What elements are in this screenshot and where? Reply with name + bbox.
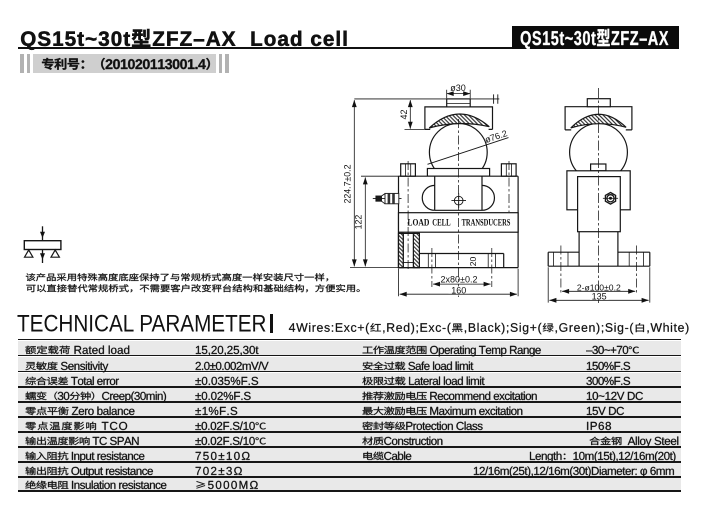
svg-text:20: 20 xyxy=(468,257,478,267)
svg-text:135: 135 xyxy=(592,291,607,301)
svg-text:TECHNICAL PARAMETER: TECHNICAL PARAMETER xyxy=(17,311,267,338)
svg-text:CELL: CELL xyxy=(432,218,450,228)
svg-text:ø76.2: ø76.2 xyxy=(484,128,509,145)
svg-text:122: 122 xyxy=(354,215,364,230)
svg-text:224.7±0.2: 224.7±0.2 xyxy=(343,164,353,203)
svg-text:TRANSDUCERS: TRANSDUCERS xyxy=(462,218,511,228)
svg-text:LOAD: LOAD xyxy=(407,218,429,228)
svg-text:160: 160 xyxy=(451,286,466,296)
svg-text:42: 42 xyxy=(399,109,409,119)
svg-text:ø30: ø30 xyxy=(450,83,466,93)
svg-text:2x80±0.2: 2x80±0.2 xyxy=(441,275,478,285)
